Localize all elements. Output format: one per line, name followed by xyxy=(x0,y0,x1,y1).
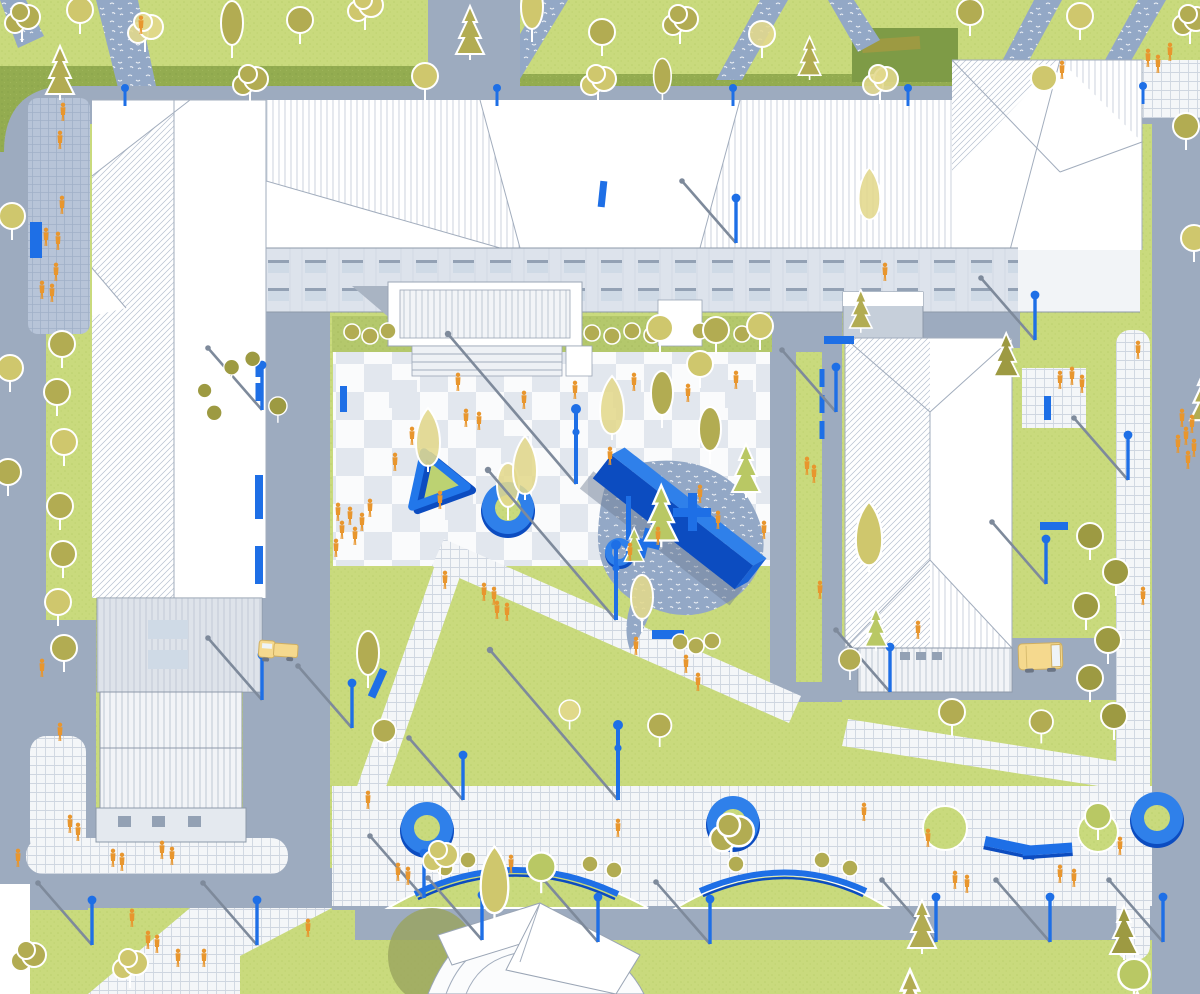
west-tower-building xyxy=(92,100,266,842)
bench xyxy=(255,475,263,519)
bike-rack xyxy=(820,421,825,439)
bench xyxy=(1040,522,1068,530)
bench xyxy=(340,386,347,412)
east-lane-green-verge xyxy=(796,352,822,682)
play-post xyxy=(626,496,631,540)
site-plan-illustration xyxy=(0,0,1200,994)
bike-rack xyxy=(256,383,261,401)
bench xyxy=(824,336,854,344)
bike-rack xyxy=(820,369,825,387)
sign-post xyxy=(30,222,42,258)
tree-pit-1 xyxy=(923,806,967,850)
frame-white-wedge xyxy=(0,884,30,994)
bench xyxy=(255,546,263,584)
promenade-ring-3 xyxy=(1130,792,1184,848)
delivery-van xyxy=(1018,642,1063,673)
bench xyxy=(1044,396,1051,420)
